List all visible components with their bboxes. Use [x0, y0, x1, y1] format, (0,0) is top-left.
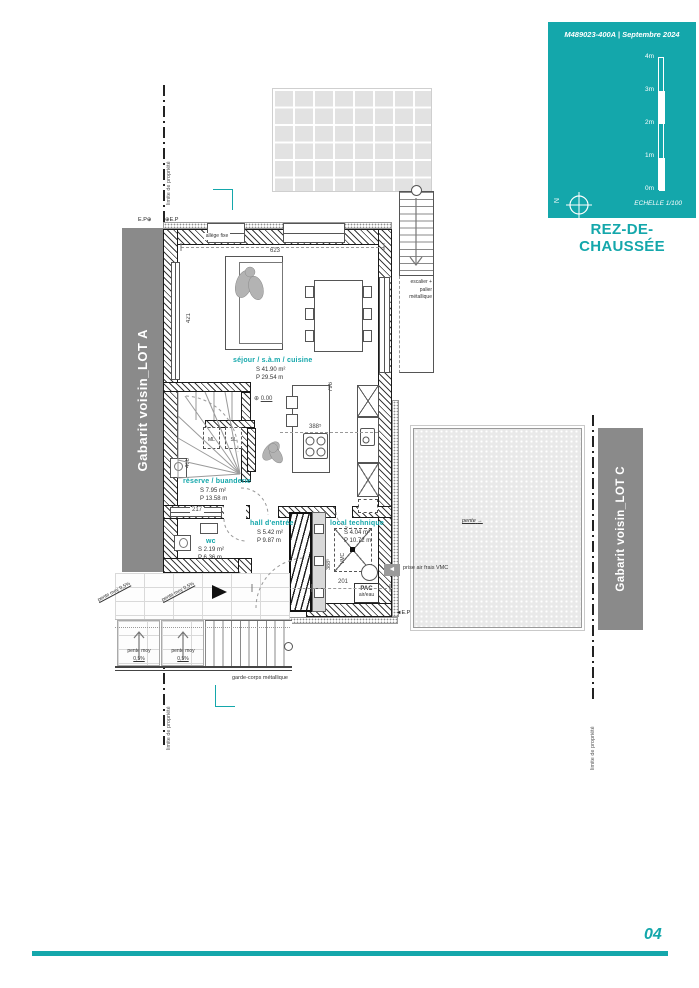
neighbour-lot-c-label: Gabarit voisin_LOT C: [615, 466, 627, 592]
scale-bar-segment: [659, 158, 665, 191]
scale-tick-4m: 4m: [630, 53, 654, 60]
scale-tick-0m: 0m: [630, 185, 654, 192]
footer-rule: [32, 951, 668, 956]
north-compass-icon: [562, 190, 592, 220]
scale-bar-segment: [659, 91, 665, 124]
north-label: N: [554, 198, 561, 203]
title-block: M489023-400A | Septembre 2024 4m 3m 2m 1…: [548, 22, 696, 218]
scale-tick-2m: 2m: [630, 119, 654, 126]
drawing-reference: M489023-400A | Septembre 2024: [552, 30, 692, 39]
scale-tick-3m: 3m: [630, 86, 654, 93]
drawing-sheet: limite de propriété limite de propriété …: [0, 0, 699, 988]
page-number: 04: [644, 926, 662, 944]
neighbour-lot-c: Gabarit voisin_LOT C: [598, 428, 643, 630]
sheet-title: REZ-DE-CHAUSSÉE: [548, 221, 696, 255]
scale-bar: [658, 57, 664, 190]
neighbour-lot-a-label: Gabarit voisin_LOT A: [135, 329, 150, 471]
scale-tick-1m: 1m: [630, 152, 654, 159]
scale-text: ECHELLE 1/100: [596, 200, 688, 207]
neighbour-lot-a: Gabarit voisin_LOT A: [122, 228, 163, 572]
